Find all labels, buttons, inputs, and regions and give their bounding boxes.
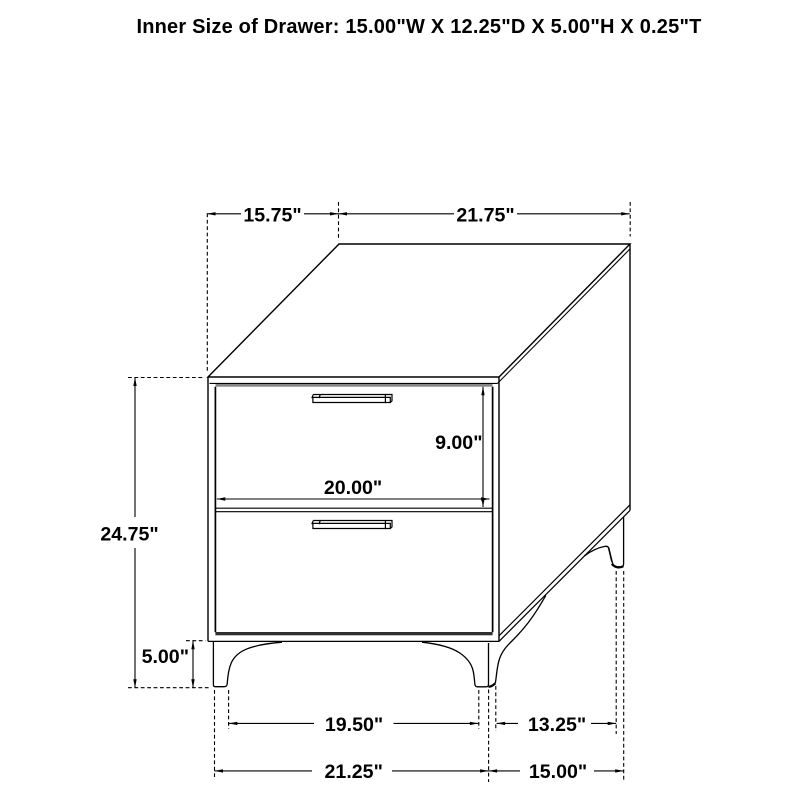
svg-text:9.00": 9.00" (435, 432, 482, 454)
svg-text:24.75": 24.75" (100, 523, 158, 545)
svg-text:20.00": 20.00" (324, 477, 382, 499)
svg-text:15.75": 15.75" (243, 204, 301, 226)
svg-text:19.50": 19.50" (325, 714, 383, 736)
svg-text:21.25": 21.25" (325, 761, 383, 783)
svg-text:Inner Size of Drawer: 15.00"W: Inner Size of Drawer: 15.00"W X 12.25"D … (136, 16, 701, 38)
svg-text:5.00": 5.00" (142, 646, 189, 668)
svg-text:21.75": 21.75" (456, 204, 514, 226)
svg-text:13.25": 13.25" (528, 714, 586, 736)
svg-text:15.00": 15.00" (529, 761, 587, 783)
